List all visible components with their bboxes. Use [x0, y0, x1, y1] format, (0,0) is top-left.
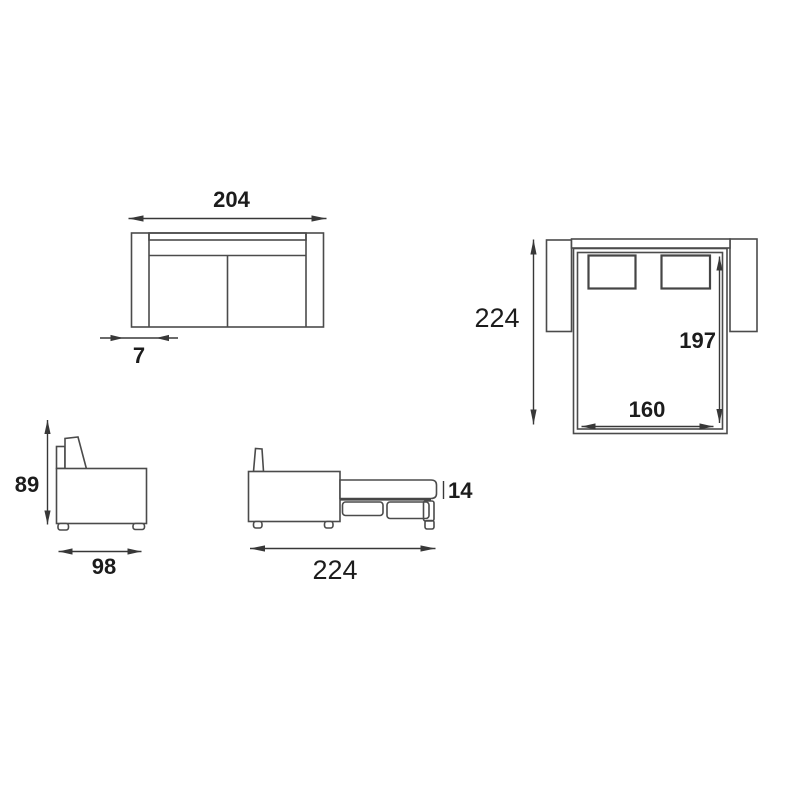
side-closed-rear-post: [57, 447, 66, 469]
mattress-thickness-label: 14: [448, 480, 488, 502]
side-open-front-foot: [254, 522, 263, 529]
arrow-left-icon: [59, 548, 73, 554]
side-closed-rear-foot: [133, 524, 145, 530]
open-bed-platform: [340, 480, 437, 499]
side-closed-backrest-cushion: [65, 437, 87, 469]
front-armrest-width-label: 7: [119, 345, 159, 367]
arrow-up-icon: [44, 420, 50, 434]
top-left-armrest: [547, 240, 572, 332]
underbed-box-left: [343, 502, 384, 516]
arrow-left-icon: [129, 215, 144, 221]
side-open-rear-foot: [325, 522, 334, 529]
arrow-right-icon: [111, 335, 124, 341]
bed-width-label: 160: [619, 399, 675, 421]
side-closed-front-foot: [58, 524, 69, 531]
arrow-right-icon: [421, 545, 436, 551]
arrow-left-icon: [250, 545, 265, 551]
arrow-down-icon: [530, 410, 536, 425]
front-armrest-dimension-7: [100, 335, 178, 341]
side-view-open: [249, 449, 444, 530]
pillow-left: [589, 256, 636, 289]
side-height-dimension-89: [44, 420, 50, 525]
top-backrest-strip: [572, 239, 731, 248]
pillow-right: [662, 256, 711, 289]
top-right-armrest: [730, 239, 757, 332]
side-open-body: [249, 472, 341, 522]
open-length-label: 224: [307, 557, 363, 584]
diagram-linework: [0, 0, 800, 800]
side-view-closed: [57, 437, 147, 530]
front-view-closed: [132, 233, 324, 327]
side-height-label: 89: [0, 474, 54, 496]
arrow-left-icon: [156, 335, 169, 341]
side-depth-label: 98: [76, 556, 132, 578]
bed-length-label: 197: [670, 330, 716, 352]
side-closed-body: [57, 469, 147, 524]
top-depth-dimension-224: [530, 240, 536, 425]
sofa-bed-dimension-diagram: 204 7 224 197 160 89 98 14 224: [0, 0, 800, 800]
arrow-right-icon: [312, 215, 327, 221]
front-width-dimension-204: [129, 215, 327, 221]
arrow-down-icon: [44, 511, 50, 525]
arrow-up-icon: [530, 240, 536, 255]
side-open-backrest: [254, 449, 264, 472]
open-length-dimension-224: [250, 545, 436, 551]
arrow-right-icon: [128, 548, 142, 554]
front-width-label: 204: [204, 189, 260, 211]
top-depth-label: 224: [469, 305, 525, 332]
